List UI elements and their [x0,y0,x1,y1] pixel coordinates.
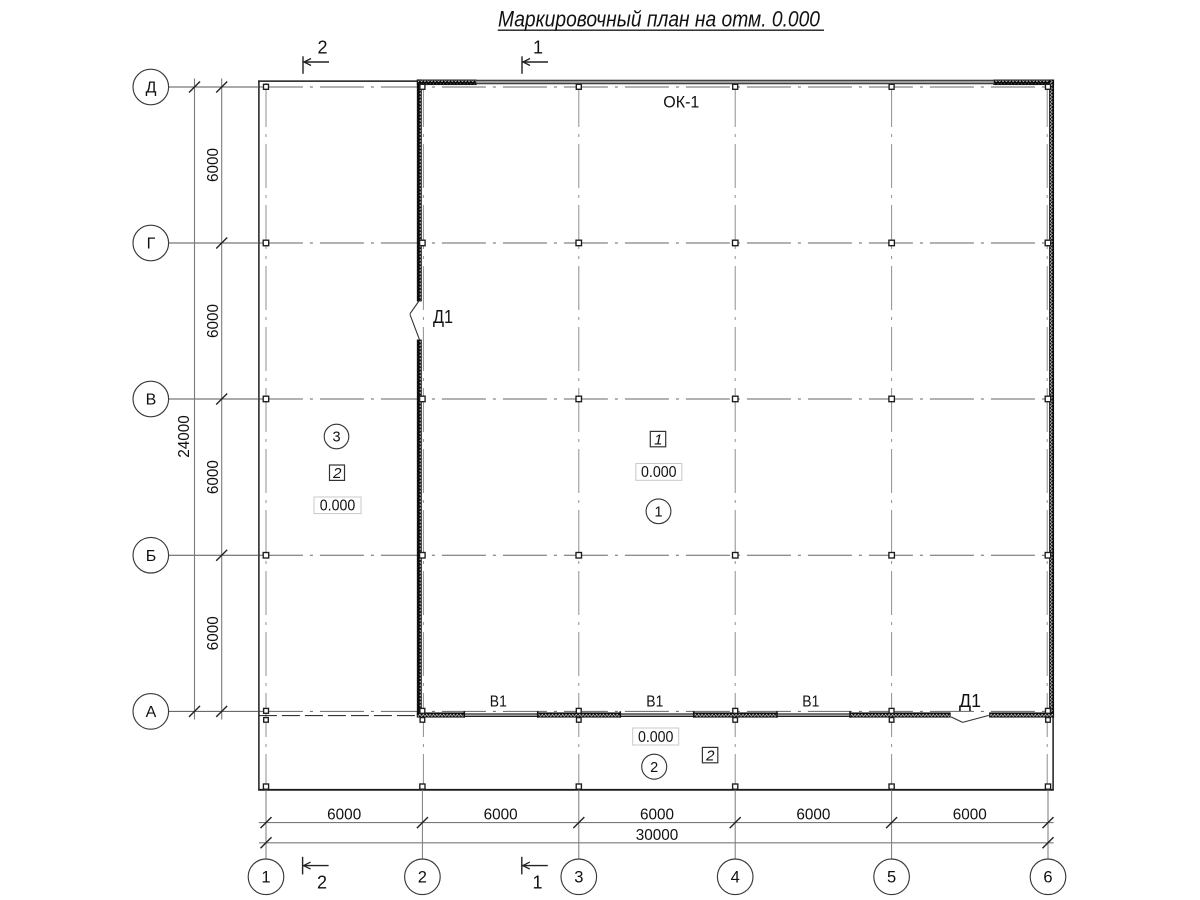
svg-text:5: 5 [887,869,896,887]
svg-text:А: А [146,704,157,721]
svg-text:1: 1 [261,869,270,887]
svg-text:0.000: 0.000 [638,729,674,746]
svg-text:В1: В1 [802,694,819,711]
svg-text:0.000: 0.000 [320,498,356,515]
svg-text:Д: Д [146,80,157,97]
svg-text:ОК-1: ОК-1 [663,93,699,112]
svg-text:6000: 6000 [327,807,361,824]
svg-text:30000: 30000 [636,827,679,844]
svg-text:1: 1 [654,504,662,520]
svg-text:1: 1 [532,872,542,892]
svg-text:0.000: 0.000 [641,464,677,481]
svg-text:6000: 6000 [796,807,830,824]
svg-text:6000: 6000 [640,807,674,824]
svg-text:Д1: Д1 [959,691,981,711]
svg-text:Г: Г [147,236,156,253]
svg-text:3: 3 [332,430,340,446]
svg-text:24000: 24000 [176,415,193,458]
svg-text:2: 2 [332,465,342,482]
svg-text:6000: 6000 [205,460,222,494]
svg-text:6: 6 [1043,869,1052,887]
svg-text:2: 2 [317,38,327,58]
svg-text:1: 1 [654,431,662,448]
svg-text:6000: 6000 [484,807,518,824]
svg-text:1: 1 [533,38,543,58]
svg-text:6000: 6000 [953,807,987,824]
svg-text:2: 2 [650,760,658,776]
svg-text:6000: 6000 [205,148,222,182]
svg-text:В1: В1 [490,694,507,711]
svg-text:3: 3 [574,869,583,887]
svg-text:Д1: Д1 [433,307,453,327]
svg-text:В: В [146,392,157,409]
svg-text:4: 4 [731,869,740,887]
svg-text:Б: Б [146,548,157,565]
svg-text:6000: 6000 [205,304,222,338]
svg-text:В1: В1 [646,694,663,711]
svg-text:2: 2 [317,872,327,892]
svg-text:2: 2 [705,747,715,764]
svg-text:2: 2 [418,869,427,887]
svg-text:Маркировочный план на отм. 0.0: Маркировочный план на отм. 0.000 [498,6,821,31]
svg-text:6000: 6000 [205,616,222,650]
